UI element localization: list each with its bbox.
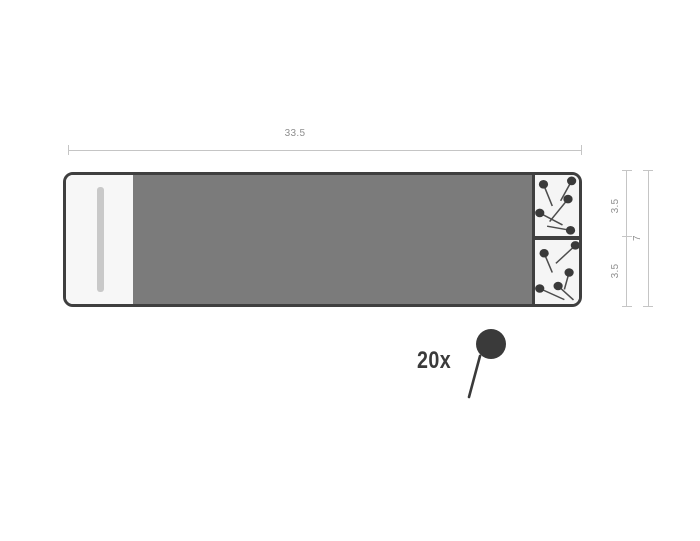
push-pin (553, 282, 573, 300)
pen-bar (97, 187, 104, 292)
dimension-tick (622, 170, 632, 171)
pin-tray (63, 172, 582, 307)
dimension-tick (68, 145, 69, 155)
push-pin (540, 249, 553, 273)
total-height-dimension-line (648, 171, 649, 307)
pin-compartment-top (532, 175, 579, 238)
pin-compartment-bottom (532, 238, 579, 304)
pin-compartments (532, 175, 579, 304)
push-pin (556, 241, 579, 263)
total-height-dimension-label: 7 (632, 222, 644, 254)
dimension-tick (581, 145, 582, 155)
compartment-bottom-dimension-label: 3.5 (610, 255, 622, 287)
board-surface (133, 175, 532, 304)
dimension-tick (622, 306, 632, 307)
dimension-tick (643, 170, 653, 171)
push-pin (547, 226, 575, 235)
quantity-label: 20x (417, 347, 451, 375)
pins-bottom-graphic (535, 240, 579, 304)
compartment-dimension-line (626, 171, 627, 307)
push-pin (539, 180, 552, 206)
width-dimension-label: 33.5 (265, 128, 325, 140)
pins-top-graphic (535, 175, 579, 236)
dimension-tick (622, 236, 632, 237)
diagram-canvas: 33.5 3.5 3.5 7 20x (0, 0, 700, 541)
push-pin (564, 268, 573, 289)
dimension-tick (643, 306, 653, 307)
pen-slot (66, 175, 133, 304)
width-dimension-line (68, 150, 582, 151)
push-pin-icon (460, 326, 510, 402)
compartment-top-dimension-label: 3.5 (610, 190, 622, 222)
